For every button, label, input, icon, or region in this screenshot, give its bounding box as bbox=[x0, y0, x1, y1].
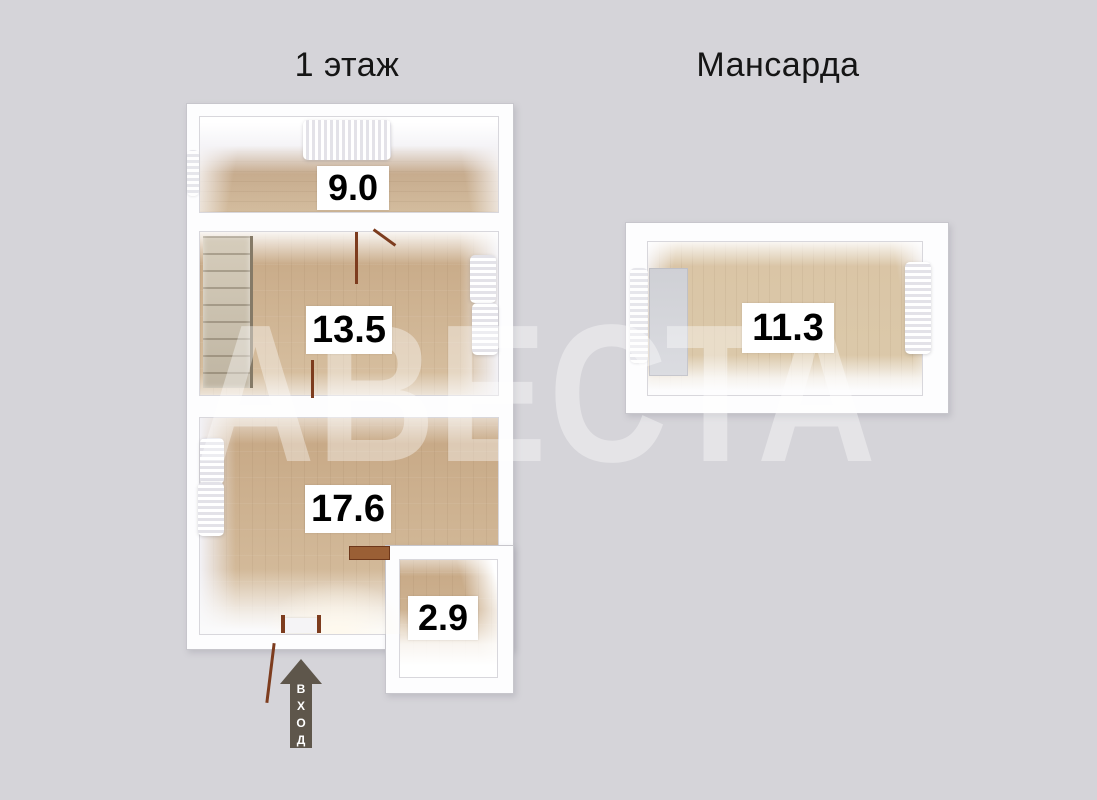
attic-stair-opening bbox=[649, 268, 688, 376]
floor1-title: 1 этаж bbox=[237, 46, 457, 85]
door-annex-icon bbox=[349, 546, 390, 560]
entrance-arrow: ВХОД bbox=[280, 659, 322, 748]
attic-title: Мансарда bbox=[668, 46, 888, 85]
window-curtain-room17-b-icon bbox=[198, 482, 224, 536]
arrow-up-icon bbox=[280, 659, 322, 684]
area-label-room11-3: 11.3 bbox=[742, 303, 834, 353]
door-between-13-17-icon bbox=[311, 360, 314, 398]
area-label-room13: 13.5 bbox=[306, 306, 392, 354]
area-label-room9: 9.0 bbox=[317, 166, 389, 210]
window-curtain-room17-a-icon bbox=[200, 438, 224, 484]
staircase bbox=[203, 236, 253, 388]
window-curtain-room13-b-icon bbox=[472, 303, 498, 355]
entrance-door-jamb-right-icon bbox=[317, 615, 321, 633]
window-curtain-room9-left-icon bbox=[187, 150, 199, 196]
window-curtain-attic-right-icon bbox=[905, 262, 931, 354]
window-curtain-room9-icon bbox=[303, 120, 391, 160]
entrance-door-jamb-left-icon bbox=[281, 615, 285, 633]
entrance-label: ВХОД bbox=[290, 684, 312, 748]
entrance-threshold bbox=[285, 618, 318, 633]
floor-plan-image: 1 этаж Мансарда bbox=[0, 0, 1097, 800]
entrance-door-leaf-icon bbox=[265, 643, 275, 703]
window-curtain-room13-a-icon bbox=[470, 255, 496, 303]
door-room13-leaf-icon bbox=[355, 232, 358, 284]
area-label-room2-9: 2.9 bbox=[408, 596, 478, 640]
window-curtain-attic-left-icon bbox=[630, 268, 648, 363]
area-label-room17: 17.6 bbox=[305, 485, 391, 533]
